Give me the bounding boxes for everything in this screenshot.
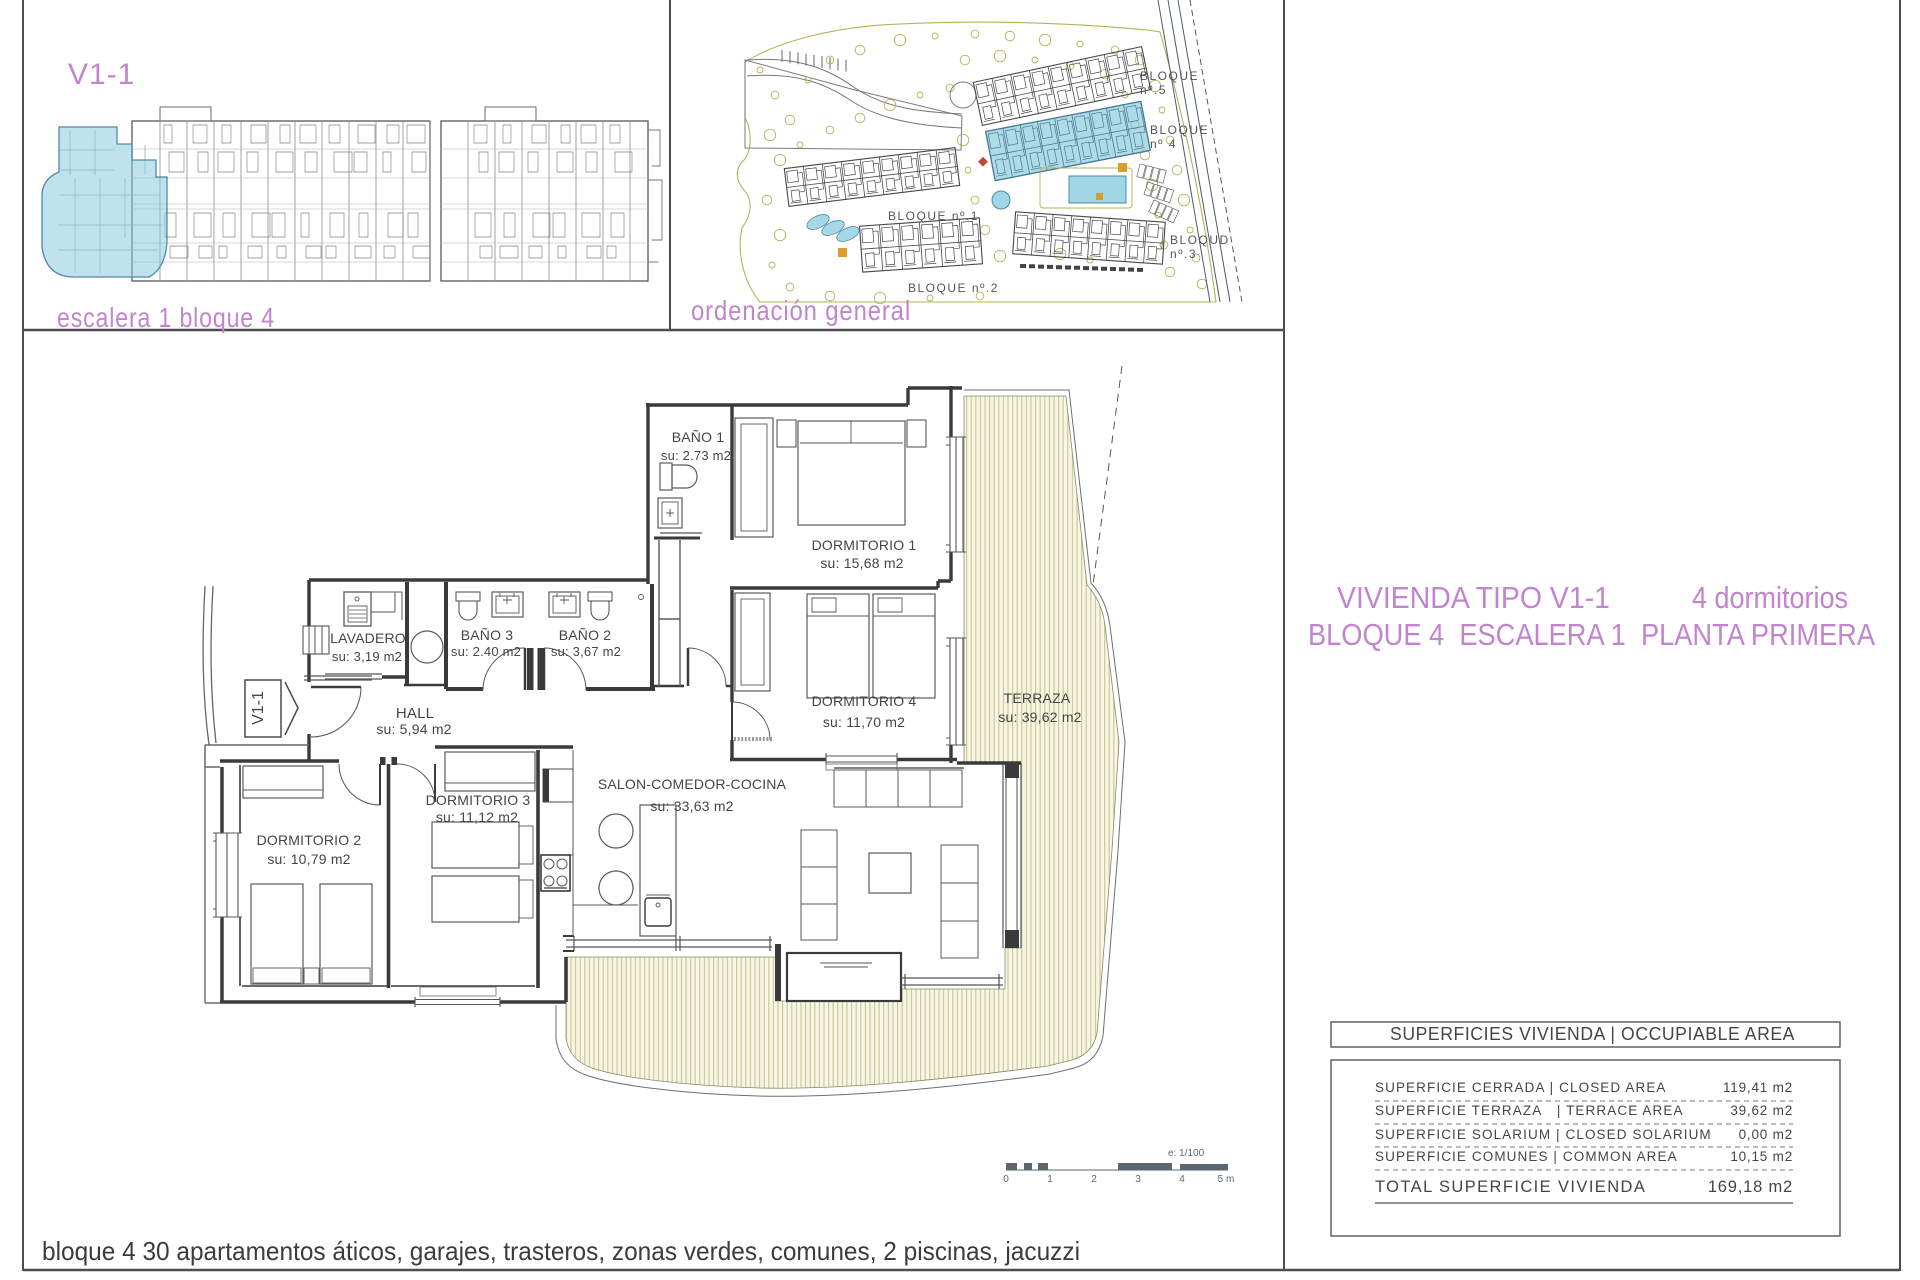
svg-text:VIVIENDA TIPO V1-1: VIVIENDA TIPO V1-1 (1337, 580, 1610, 615)
svg-text:HALL: HALL (396, 705, 434, 722)
svg-text:3: 3 (1135, 1174, 1141, 1185)
svg-text:BLOQUE: BLOQUE (1140, 69, 1199, 83)
svg-text:su: 2.73 m2: su: 2.73 m2 (661, 448, 731, 463)
svg-text:escalera 1 bloque 4: escalera 1 bloque 4 (57, 302, 275, 333)
svg-text:119,41 m2: 119,41 m2 (1723, 1080, 1793, 1095)
svg-text:SUPERFICIE TERRAZA | TERRACE: SUPERFICIE TERRAZA | TERRACE AREA (1375, 1103, 1684, 1118)
svg-text:SUPERFICIE CERRADA | CLOSED AR: SUPERFICIE CERRADA | CLOSED AREA (1375, 1080, 1667, 1095)
svg-text:nº.5: nº.5 (1140, 83, 1167, 97)
svg-text:SUPERFICIES VIVIENDA | OCCUPIA: SUPERFICIES VIVIENDA | OCCUPIABLE AREA (1390, 1024, 1795, 1044)
svg-text:su: 15,68 m2: su: 15,68 m2 (820, 555, 903, 571)
svg-text:nº 4: nº 4 (1150, 137, 1177, 151)
svg-text:BAÑO 1: BAÑO 1 (672, 429, 725, 445)
svg-text:V1-1: V1-1 (68, 58, 135, 91)
svg-text:su: 10,79 m2: su: 10,79 m2 (267, 851, 350, 867)
svg-text:ordenación general: ordenación general (691, 295, 911, 326)
svg-text:TERRAZA: TERRAZA (1004, 690, 1071, 706)
svg-text:su: 11,12 m2: su: 11,12 m2 (436, 809, 518, 825)
svg-text:SUPERFICIE SOLARIUM | CLOSED S: SUPERFICIE SOLARIUM | CLOSED SOLARIUM (1375, 1127, 1712, 1142)
svg-text:BLOQUE 4 ESCALERA 1 PLANTA P: BLOQUE 4 ESCALERA 1 PLANTA PRIMERA (1308, 617, 1875, 652)
svg-text:e: 1/100: e: 1/100 (1168, 1148, 1205, 1159)
svg-text:BLOQUE: BLOQUE (1150, 123, 1209, 137)
svg-text:10,15 m2: 10,15 m2 (1730, 1149, 1793, 1164)
svg-text:2: 2 (1091, 1174, 1097, 1185)
svg-text:1: 1 (1047, 1174, 1053, 1185)
svg-text:DORMITORIO 4: DORMITORIO 4 (812, 693, 917, 709)
svg-text:169,18 m2: 169,18 m2 (1708, 1178, 1793, 1196)
svg-text:DORMITORIO 2: DORMITORIO 2 (257, 832, 362, 848)
svg-text:TOTAL SUPERFICIE VIVIENDA: TOTAL SUPERFICIE VIVIENDA (1375, 1178, 1646, 1196)
svg-text:su: 3,67 m2: su: 3,67 m2 (551, 644, 621, 659)
svg-text:DORMITORIO 1: DORMITORIO 1 (812, 537, 917, 553)
svg-text:SUPERFICIE COMUNES | COMMON AR: SUPERFICIE COMUNES | COMMON AREA (1375, 1149, 1678, 1164)
svg-text:BLOQUE nº.1: BLOQUE nº.1 (888, 209, 979, 223)
svg-text:SALON-COMEDOR-COCINA: SALON-COMEDOR-COCINA (598, 776, 787, 792)
svg-text:39,62 m2: 39,62 m2 (1730, 1103, 1793, 1118)
svg-text:su: 11,70 m2: su: 11,70 m2 (823, 714, 905, 730)
svg-text:DORMITORIO 3: DORMITORIO 3 (426, 792, 531, 808)
svg-text:BAÑO 3: BAÑO 3 (461, 627, 514, 643)
svg-text:su: 39,62 m2: su: 39,62 m2 (998, 709, 1081, 725)
svg-text:su: 2.40 m2: su: 2.40 m2 (451, 644, 521, 659)
svg-text:su: 3,19 m2: su: 3,19 m2 (332, 649, 402, 664)
svg-text:4 dormitorios: 4 dormitorios (1692, 580, 1848, 615)
svg-text:0,00 m2: 0,00 m2 (1739, 1127, 1793, 1142)
svg-text:su: 5,94 m2: su: 5,94 m2 (376, 721, 451, 737)
svg-text:bloque 4 30 apartamentos ático: bloque 4 30 apartamentos áticos, garajes… (42, 1236, 1080, 1266)
svg-text:V1-1: V1-1 (250, 691, 267, 725)
svg-text:BLOQUE nº.2: BLOQUE nº.2 (908, 281, 999, 295)
svg-text:su: 33,63 m2: su: 33,63 m2 (650, 798, 733, 814)
svg-text:4: 4 (1179, 1174, 1185, 1185)
svg-text:LAVADERO: LAVADERO (330, 630, 406, 646)
svg-text:nº.3: nº.3 (1170, 247, 1197, 261)
svg-text:BLOQUD: BLOQUD (1170, 233, 1230, 247)
svg-text:BAÑO 2: BAÑO 2 (559, 627, 612, 643)
svg-text:0: 0 (1003, 1174, 1009, 1185)
svg-text:5 m: 5 m (1218, 1174, 1235, 1185)
